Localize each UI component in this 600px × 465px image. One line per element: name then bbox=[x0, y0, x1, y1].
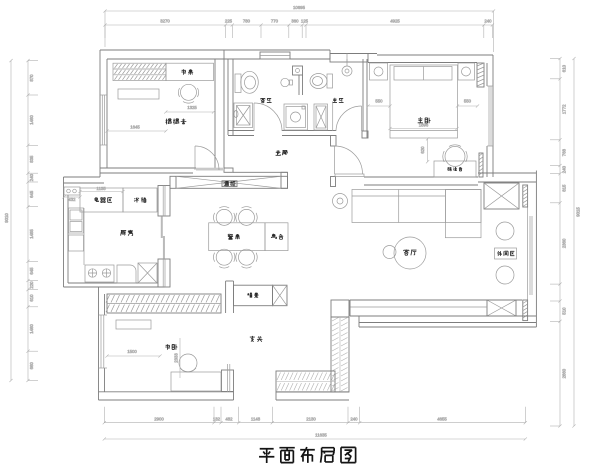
svg-text:1485: 1485 bbox=[29, 229, 34, 239]
svg-text:550: 550 bbox=[375, 99, 383, 104]
svg-text:2333: 2333 bbox=[174, 353, 179, 363]
svg-text:1135: 1135 bbox=[96, 186, 106, 191]
svg-text:645: 645 bbox=[29, 267, 34, 275]
svg-text:1325: 1325 bbox=[187, 105, 197, 110]
svg-text:482: 482 bbox=[225, 416, 233, 421]
svg-text:780: 780 bbox=[243, 19, 251, 24]
svg-text:9015: 9015 bbox=[576, 207, 581, 217]
svg-text:870: 870 bbox=[29, 74, 34, 82]
svg-text:660: 660 bbox=[29, 362, 34, 370]
svg-text:550: 550 bbox=[464, 99, 472, 104]
svg-text:1148: 1148 bbox=[251, 416, 261, 421]
svg-text:1772: 1772 bbox=[562, 104, 567, 114]
svg-text:510: 510 bbox=[562, 307, 567, 315]
svg-text:610: 610 bbox=[562, 64, 567, 72]
svg-text:620: 620 bbox=[420, 146, 425, 154]
svg-text:1460: 1460 bbox=[29, 115, 34, 125]
svg-text:240: 240 bbox=[350, 416, 358, 421]
svg-text:2860: 2860 bbox=[562, 368, 567, 378]
svg-text:835: 835 bbox=[29, 155, 34, 163]
svg-text:1460: 1460 bbox=[29, 324, 34, 334]
svg-text:2900: 2900 bbox=[154, 416, 164, 421]
svg-text:3270: 3270 bbox=[160, 19, 170, 24]
svg-text:360: 360 bbox=[291, 19, 299, 24]
svg-text:768: 768 bbox=[562, 148, 567, 156]
svg-text:2130: 2130 bbox=[306, 416, 316, 421]
svg-text:132: 132 bbox=[213, 416, 221, 421]
svg-text:770: 770 bbox=[271, 19, 279, 24]
svg-text:240: 240 bbox=[562, 165, 567, 173]
svg-text:225: 225 bbox=[225, 19, 233, 24]
svg-text:10695: 10695 bbox=[293, 5, 306, 10]
svg-text:1645: 1645 bbox=[130, 125, 140, 130]
svg-text:1500: 1500 bbox=[127, 349, 137, 354]
svg-text:11635: 11635 bbox=[315, 433, 327, 438]
svg-text:220: 220 bbox=[29, 281, 34, 289]
svg-text:9010: 9010 bbox=[4, 213, 9, 223]
svg-text:240: 240 bbox=[29, 173, 34, 181]
svg-text:240: 240 bbox=[484, 19, 492, 24]
svg-text:2360: 2360 bbox=[562, 238, 567, 248]
svg-text:432: 432 bbox=[68, 197, 76, 202]
svg-text:4655: 4655 bbox=[437, 416, 447, 421]
svg-text:645: 645 bbox=[29, 190, 34, 198]
svg-text:610: 610 bbox=[29, 294, 34, 302]
svg-text:4925: 4925 bbox=[390, 19, 400, 24]
svg-text:815: 815 bbox=[562, 184, 567, 192]
svg-text:125: 125 bbox=[301, 19, 309, 24]
